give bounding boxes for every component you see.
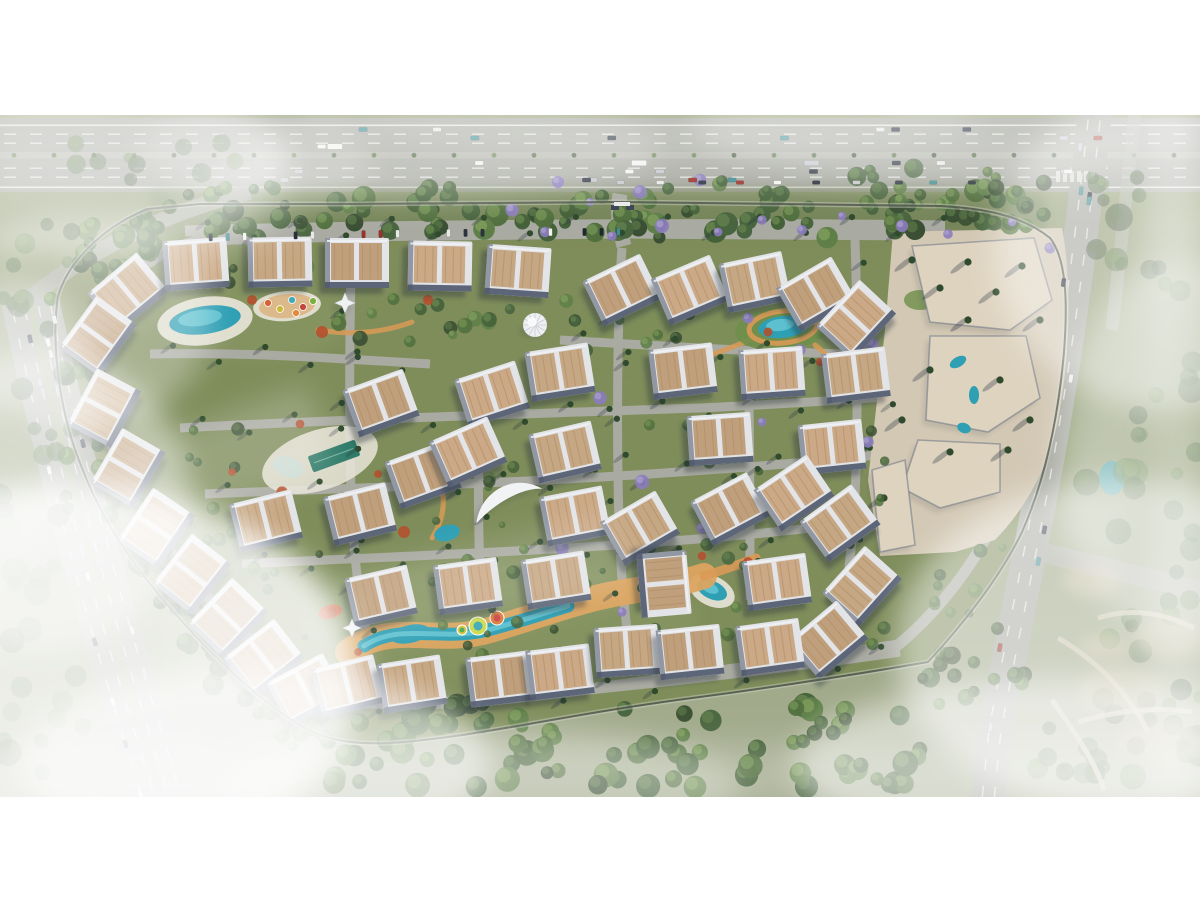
car bbox=[464, 229, 468, 237]
residential-building bbox=[630, 544, 692, 619]
plaza-pool bbox=[969, 386, 979, 404]
residential-building bbox=[642, 342, 718, 406]
tree-highlight bbox=[230, 265, 235, 270]
tree-highlight bbox=[740, 543, 745, 548]
building-facade-shaded bbox=[408, 240, 414, 290]
jacaranda-highlight bbox=[636, 476, 643, 483]
playground-element bbox=[289, 297, 296, 304]
building-facade-shaded bbox=[248, 280, 312, 287]
tree-highlight bbox=[571, 316, 576, 321]
tree-highlight bbox=[347, 215, 357, 225]
tree-highlight bbox=[959, 210, 968, 219]
tree-highlight bbox=[405, 336, 411, 342]
tree-highlight bbox=[837, 702, 848, 713]
tree-highlight bbox=[723, 552, 730, 559]
palm-tree bbox=[199, 416, 205, 422]
flame-tree bbox=[764, 328, 773, 337]
jacaranda-highlight bbox=[595, 393, 602, 400]
jacaranda-highlight bbox=[798, 226, 803, 231]
photo-area bbox=[0, 70, 1200, 875]
palm-tree bbox=[623, 360, 629, 366]
playground-element bbox=[300, 304, 307, 311]
tree-highlight bbox=[477, 649, 484, 656]
tree-highlight bbox=[988, 217, 996, 225]
tree-highlight bbox=[510, 709, 522, 721]
building-facade-shaded bbox=[325, 282, 389, 288]
tree-highlight bbox=[631, 211, 638, 218]
palm-tree bbox=[355, 354, 361, 360]
car bbox=[447, 229, 451, 237]
playground-element bbox=[277, 306, 284, 313]
tree-highlight bbox=[802, 218, 809, 225]
palm-tree bbox=[768, 537, 774, 543]
palm-tree bbox=[353, 548, 359, 554]
palm-tree bbox=[849, 214, 855, 220]
tree-highlight bbox=[885, 216, 894, 225]
car bbox=[481, 229, 485, 237]
jacaranda-highlight bbox=[758, 418, 762, 422]
palm-tree bbox=[623, 452, 629, 458]
palm-tree bbox=[481, 215, 487, 221]
jacaranda-highlight bbox=[541, 228, 546, 233]
tree-highlight bbox=[550, 626, 555, 631]
flame-tree bbox=[316, 326, 328, 338]
tree-highlight bbox=[772, 217, 780, 225]
roof-stripe bbox=[362, 244, 363, 279]
tree-highlight bbox=[560, 295, 568, 303]
palm-tree bbox=[567, 401, 573, 407]
roof-stripe bbox=[342, 244, 343, 279]
residential-building bbox=[519, 643, 595, 707]
flame-tree bbox=[374, 470, 382, 478]
screenshot-root bbox=[0, 0, 1200, 914]
tree-highlight bbox=[641, 338, 648, 345]
car bbox=[362, 230, 366, 238]
playground-element bbox=[265, 300, 272, 307]
tree-highlight bbox=[508, 462, 515, 469]
tree-highlight bbox=[690, 205, 696, 211]
palm-tree bbox=[338, 426, 344, 432]
tree-highlight bbox=[512, 617, 519, 624]
palm-tree bbox=[307, 362, 313, 368]
car bbox=[583, 228, 587, 236]
palm-tree bbox=[614, 416, 620, 422]
roof-stripe bbox=[334, 244, 335, 279]
palm-tree bbox=[798, 407, 804, 413]
palm-tree bbox=[890, 401, 896, 407]
tree-highlight bbox=[722, 629, 729, 636]
jacaranda-highlight bbox=[839, 213, 843, 217]
tree-highlight bbox=[784, 206, 793, 215]
palm-tree bbox=[435, 231, 441, 237]
car bbox=[396, 230, 400, 238]
tree-highlight bbox=[587, 224, 598, 235]
palm-tree bbox=[996, 376, 1003, 383]
residential-building bbox=[732, 346, 806, 407]
jacaranda-highlight bbox=[618, 608, 623, 613]
tree-highlight bbox=[416, 304, 423, 311]
tree-highlight bbox=[906, 221, 917, 232]
palm-tree bbox=[775, 453, 781, 459]
tree-highlight bbox=[499, 522, 503, 526]
palm-tree bbox=[527, 230, 533, 236]
jacaranda-highlight bbox=[758, 216, 763, 221]
tree-highlight bbox=[458, 319, 466, 327]
residential-building bbox=[680, 412, 754, 473]
residential-building bbox=[815, 346, 891, 410]
residential-building bbox=[478, 243, 552, 304]
flame-tree bbox=[698, 552, 706, 560]
tree-highlight bbox=[818, 228, 830, 240]
dome-highlight bbox=[527, 317, 537, 327]
palm-tree bbox=[522, 419, 528, 425]
car bbox=[140, 797, 146, 806]
car bbox=[600, 228, 604, 236]
flame-tree bbox=[398, 526, 410, 538]
palm-tree bbox=[1004, 446, 1011, 453]
palm-tree bbox=[964, 316, 971, 323]
tree-highlight bbox=[732, 603, 738, 609]
palm-tree bbox=[755, 466, 761, 472]
palm-tree bbox=[607, 498, 613, 504]
jacaranda-highlight bbox=[897, 221, 903, 227]
fog-patch bbox=[340, 84, 980, 160]
car bbox=[549, 228, 553, 236]
tree-highlight bbox=[481, 713, 489, 721]
palm-tree bbox=[343, 232, 349, 238]
tree-highlight bbox=[815, 717, 823, 725]
tree-highlight bbox=[316, 551, 320, 555]
tree-highlight bbox=[464, 641, 469, 646]
building-facade-shaded bbox=[325, 238, 330, 288]
car bbox=[294, 232, 298, 240]
building-facade-shaded bbox=[408, 284, 472, 291]
palm-tree bbox=[717, 354, 723, 360]
jacaranda-highlight bbox=[656, 220, 663, 227]
tree-highlight bbox=[682, 206, 689, 213]
palm-tree bbox=[878, 644, 884, 650]
tree-highlight bbox=[485, 631, 489, 635]
car bbox=[379, 230, 383, 238]
palm-tree bbox=[898, 416, 905, 423]
residential-building bbox=[319, 238, 389, 294]
jacaranda-highlight bbox=[507, 205, 514, 212]
palm-tree bbox=[389, 216, 395, 222]
palm-tree bbox=[926, 366, 933, 373]
tree-highlight bbox=[645, 420, 651, 426]
tree-highlight bbox=[317, 213, 326, 222]
jacaranda-highlight bbox=[608, 232, 613, 237]
tree-highlight bbox=[881, 457, 886, 462]
car bbox=[617, 228, 621, 236]
tree-highlight bbox=[487, 204, 500, 217]
palm-tree bbox=[317, 478, 323, 484]
playground-element bbox=[293, 310, 300, 317]
palm-tree bbox=[355, 446, 361, 452]
tree-highlight bbox=[449, 331, 454, 336]
residential-building bbox=[587, 624, 661, 685]
tree-highlight bbox=[738, 224, 746, 232]
palm-tree bbox=[946, 448, 953, 455]
palm-tree bbox=[262, 344, 268, 350]
jacaranda-highlight bbox=[714, 228, 718, 232]
jacaranda-highlight bbox=[944, 230, 949, 235]
flame-tree bbox=[247, 295, 257, 305]
palm-tree bbox=[764, 340, 770, 346]
residential-building bbox=[736, 553, 813, 618]
tree-highlight bbox=[867, 426, 873, 432]
palm-tree bbox=[861, 260, 867, 266]
palm-tree bbox=[665, 214, 671, 220]
residential-building bbox=[519, 342, 597, 408]
tree-highlight bbox=[445, 322, 453, 330]
tree-highlight bbox=[506, 305, 512, 311]
tree-highlight bbox=[367, 309, 373, 315]
palm-tree bbox=[652, 688, 658, 694]
residential-building bbox=[401, 240, 472, 297]
palm-tree bbox=[216, 359, 222, 365]
tree-highlight bbox=[389, 294, 396, 301]
tree-highlight bbox=[702, 711, 714, 723]
tree-highlight bbox=[426, 225, 435, 234]
jacaranda-highlight bbox=[863, 437, 869, 443]
palm-tree bbox=[580, 330, 586, 336]
playground-ring-center bbox=[460, 628, 465, 633]
aerial-compound-render bbox=[0, 0, 1200, 914]
palm-tree bbox=[573, 214, 579, 220]
roof-stripe bbox=[377, 244, 378, 279]
palm-tree bbox=[672, 336, 678, 342]
roof-stripe bbox=[349, 244, 350, 279]
palm-tree bbox=[430, 422, 436, 428]
tree-highlight bbox=[483, 313, 491, 321]
palm-tree bbox=[500, 471, 506, 477]
palm-tree bbox=[908, 256, 915, 263]
tree-highlight bbox=[867, 639, 874, 646]
fog-patch bbox=[220, 728, 740, 848]
car bbox=[311, 231, 315, 239]
gate-canopy bbox=[614, 202, 630, 206]
palm-tree bbox=[354, 348, 360, 354]
roof-stripe bbox=[370, 244, 371, 279]
tree-highlight bbox=[516, 215, 525, 224]
tree-highlight bbox=[536, 210, 547, 221]
playground-element bbox=[310, 298, 317, 305]
palm-tree bbox=[941, 215, 947, 221]
tree-highlight bbox=[654, 330, 660, 336]
tree-highlight bbox=[789, 701, 798, 710]
tree-highlight bbox=[677, 707, 686, 716]
tree-highlight bbox=[797, 735, 805, 743]
residential-building bbox=[729, 618, 806, 683]
residential-building bbox=[650, 624, 725, 687]
palm-tree bbox=[606, 406, 612, 412]
building-parapet bbox=[327, 240, 387, 242]
palm-tree bbox=[936, 284, 943, 291]
palm-tree bbox=[625, 349, 631, 355]
tree-highlight bbox=[788, 736, 796, 744]
tree-highlight bbox=[717, 214, 730, 227]
tree-highlight bbox=[433, 517, 438, 522]
palm-tree bbox=[809, 358, 815, 364]
tree-highlight bbox=[354, 332, 362, 340]
tree-highlight bbox=[879, 622, 886, 629]
palm-tree bbox=[992, 288, 999, 295]
tree-highlight bbox=[677, 729, 685, 737]
tree-highlight bbox=[877, 494, 882, 499]
tree-highlight bbox=[468, 312, 477, 321]
palm-tree bbox=[1026, 416, 1033, 423]
tree-highlight bbox=[332, 317, 340, 325]
tree-highlight bbox=[895, 195, 902, 202]
palm-tree bbox=[964, 258, 971, 265]
